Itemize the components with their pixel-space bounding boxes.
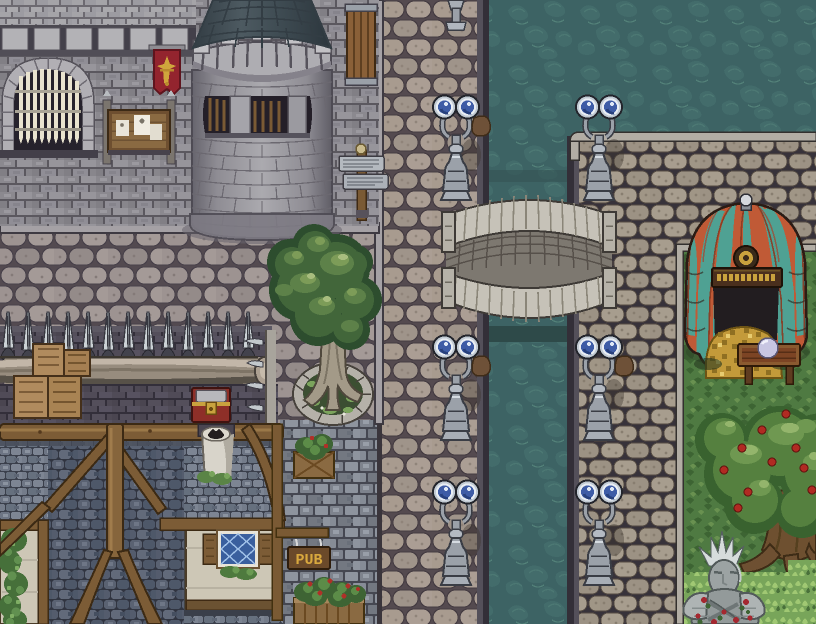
- svg-text:PUB: PUB: [295, 552, 322, 569]
